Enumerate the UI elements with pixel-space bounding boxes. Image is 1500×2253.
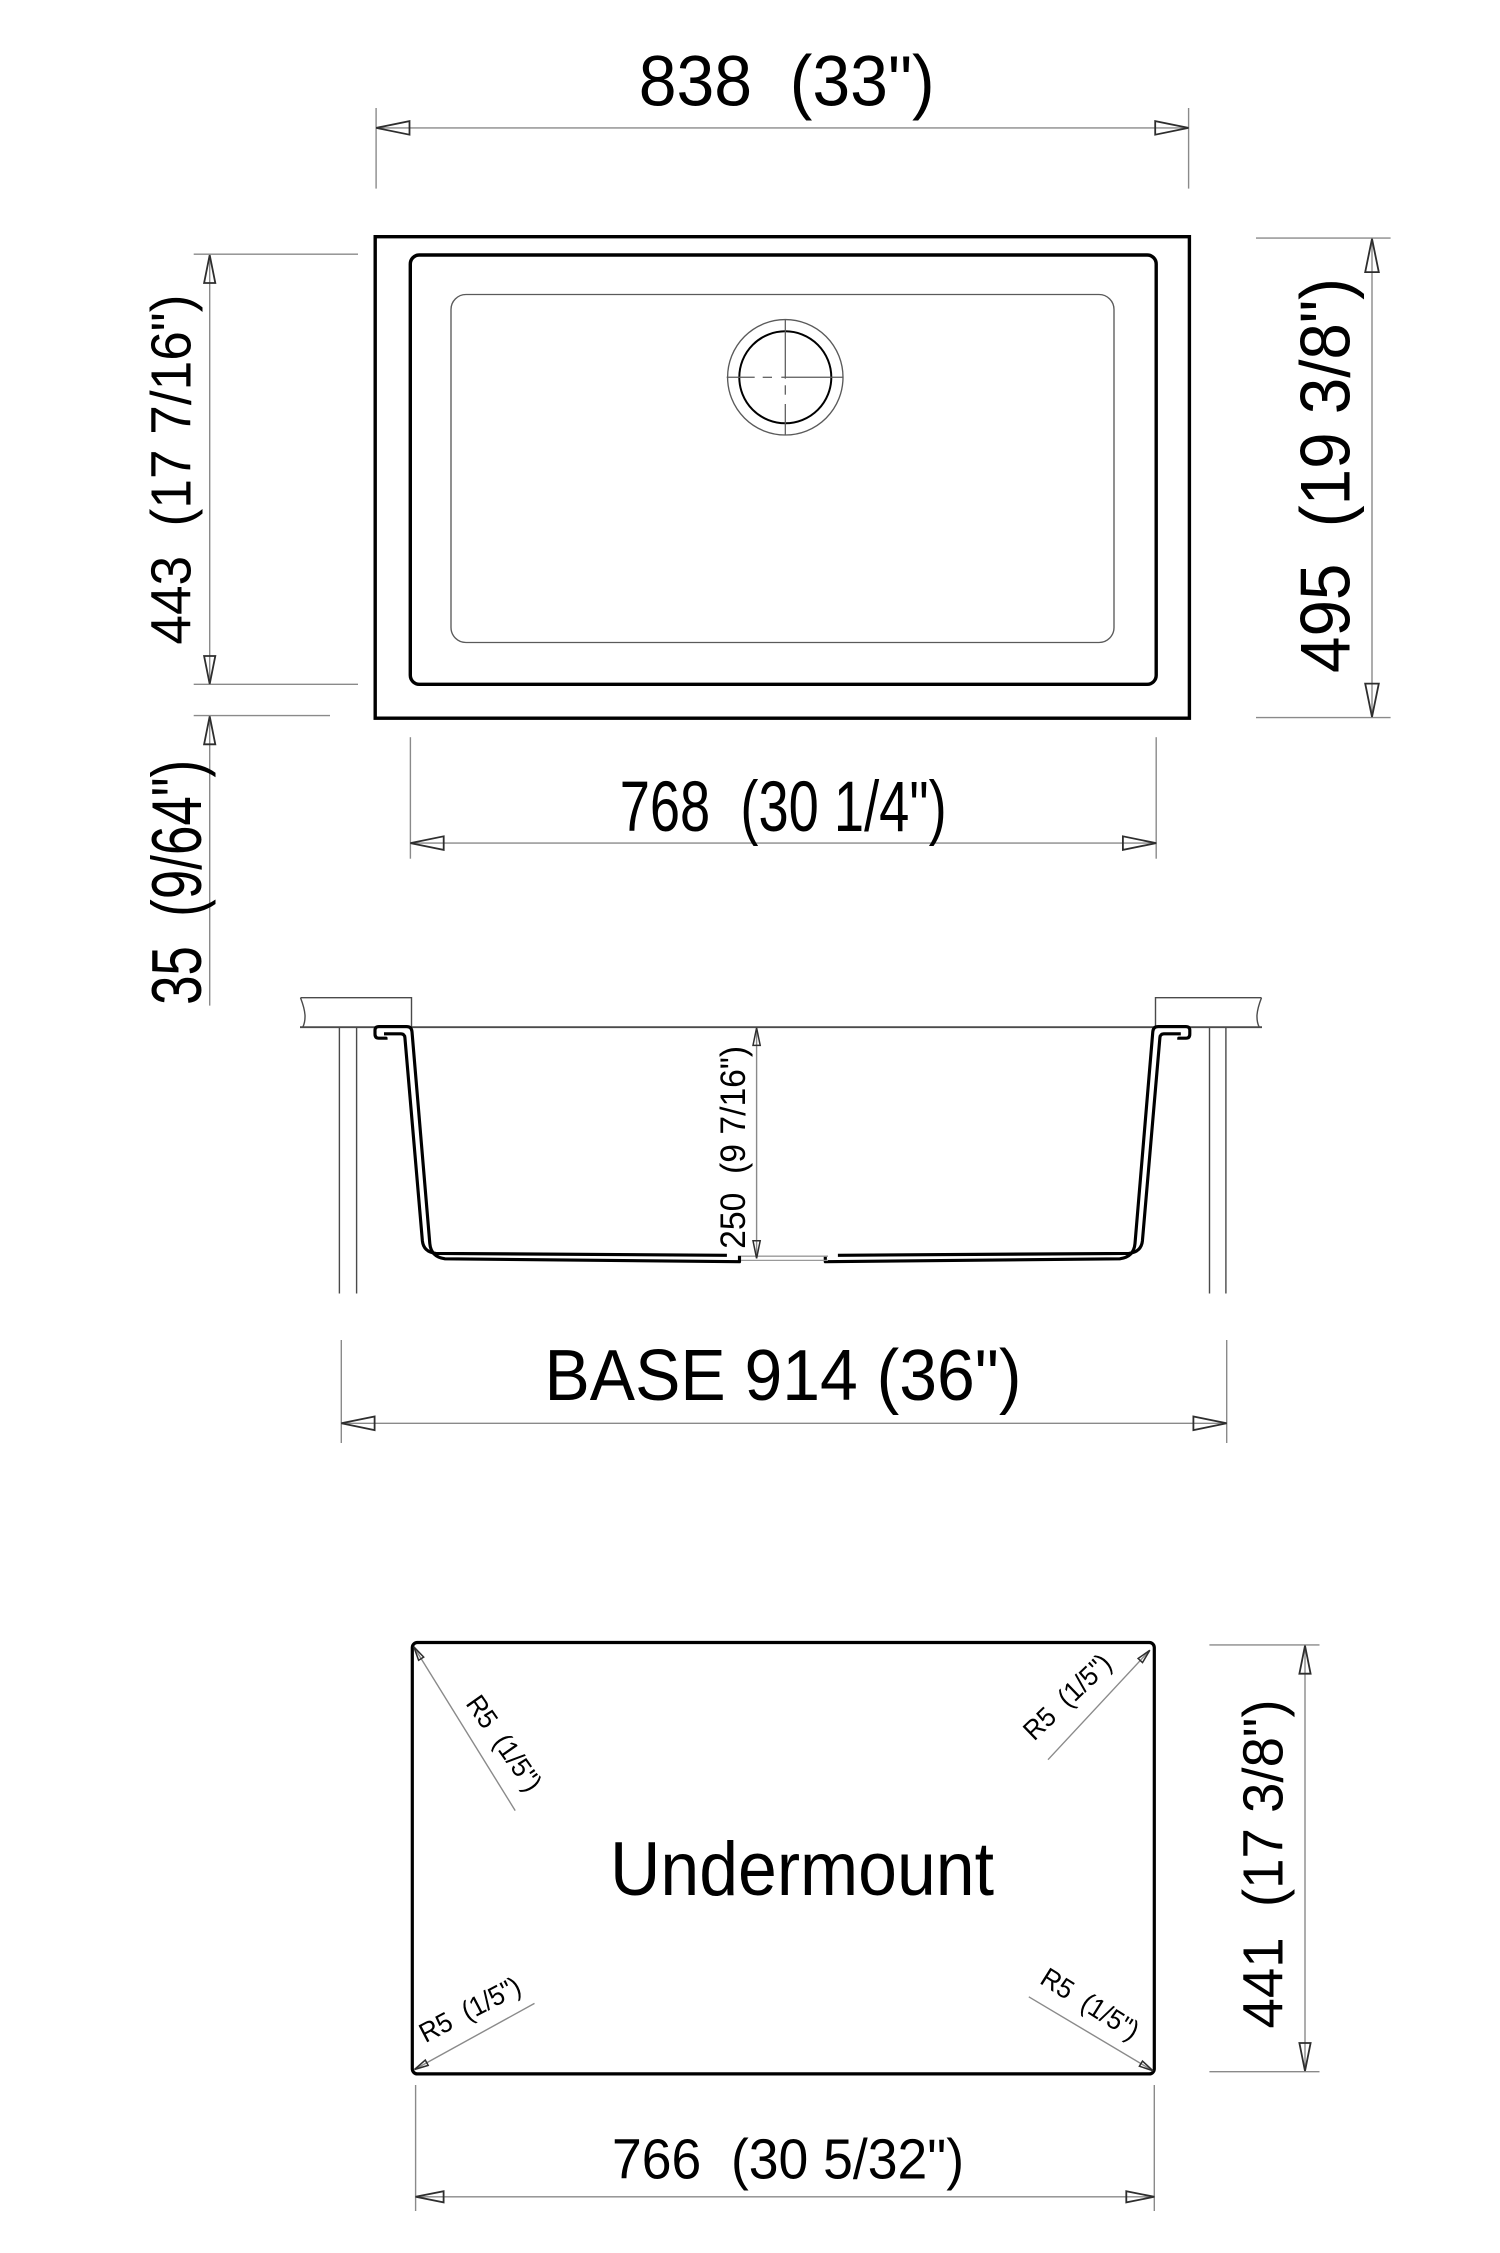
svg-text:838 (33"): 838 (33")	[639, 41, 935, 121]
svg-text:766 (30 5/32"): 766 (30 5/32")	[612, 2127, 964, 2190]
svg-text:35 (9/64"): 35 (9/64")	[137, 760, 216, 1005]
svg-text:Undermount: Undermount	[610, 1827, 994, 1912]
svg-text:441 (17 3/8"): 441 (17 3/8")	[1232, 1700, 1295, 2029]
svg-text:250 (9 7/16"): 250 (9 7/16")	[713, 1046, 753, 1249]
svg-text:495 (19 3/8"): 495 (19 3/8")	[1286, 278, 1365, 673]
svg-text:BASE 914 (36"): BASE 914 (36")	[545, 1335, 1022, 1416]
svg-text:443 (17 7/16"): 443 (17 7/16")	[139, 295, 202, 645]
svg-text:768 (30 1/4"): 768 (30 1/4")	[620, 767, 947, 847]
